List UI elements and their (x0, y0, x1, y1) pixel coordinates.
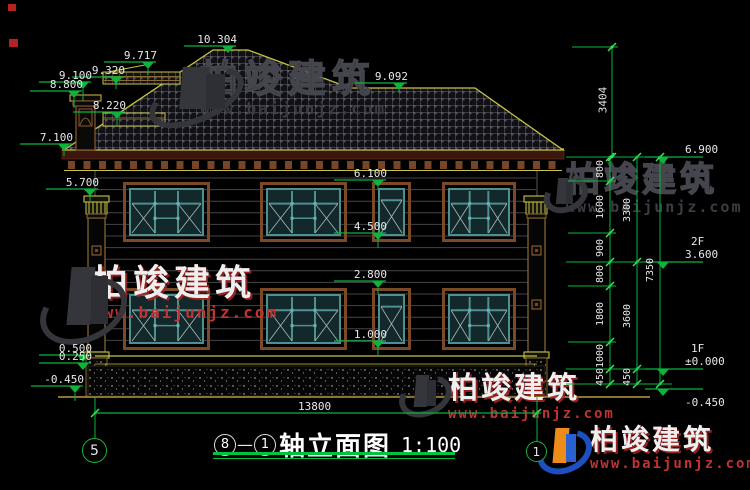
title-underline-thin (213, 458, 455, 459)
chain-dim-label: 800 (596, 265, 606, 283)
chain-dim-label: 1000 (596, 343, 606, 367)
cad-elevation-screenshot: 10.3049.7179.3209.1008.8008.2207.1005.70… (0, 0, 750, 490)
chain-dim-label: 800 (596, 160, 606, 178)
axis-bubble-5: 5 (82, 438, 107, 463)
axis-bubble-1: 1 (526, 441, 547, 462)
elevation-marker-label: 7.100 (40, 132, 73, 143)
elevation-marker-label: 9.320 (92, 65, 125, 76)
chain-dim-label: 900 (596, 238, 606, 256)
elevation-marker-label: 1.000 (354, 329, 387, 340)
floor-label: 1F (691, 343, 704, 354)
chain-dim-label: 1800 (596, 302, 606, 326)
chain-dim-label: 3300 (623, 197, 633, 221)
elevation-marker-label: 8.220 (93, 100, 126, 111)
chain-dim-label: 3600 (623, 303, 633, 327)
floor-label: 2F (691, 236, 704, 247)
elevation-marker-label: 2.800 (354, 269, 387, 280)
elevation-marker-label: -0.450 (44, 374, 84, 385)
chain-dim-label: 450 (596, 367, 606, 385)
bottom-dim-label: 13800 (298, 401, 331, 412)
title-underline-thick (213, 452, 455, 455)
elevation-marker-label: 4.500 (354, 221, 387, 232)
top-dim-label: 3404 (598, 87, 609, 114)
elevation-marker-label: 6.100 (354, 168, 387, 179)
elevation-marker-label: 9.717 (124, 50, 157, 61)
elevation-marker-label: 5.700 (66, 177, 99, 188)
elevation-marker-label: 6.900 (685, 144, 718, 155)
chain-dim-label: 1600 (596, 195, 606, 219)
elevation-marker-label: 9.092 (375, 71, 408, 82)
elevation-marker-label: 0.250 (59, 351, 92, 362)
chain-dim-label: 450 (623, 367, 633, 385)
elevation-marker-label: ±0.000 (685, 356, 725, 367)
elevation-marker-label: 10.304 (197, 34, 237, 45)
elevation-marker-label: 3.600 (685, 249, 718, 260)
elevation-marker-label: 8.800 (50, 79, 83, 90)
chain-dim-label: 7350 (646, 258, 656, 282)
elevation-marker-label: -0.450 (685, 397, 725, 408)
dimension-layer: 10.3049.7179.3209.1008.8008.2207.1005.70… (0, 0, 750, 490)
